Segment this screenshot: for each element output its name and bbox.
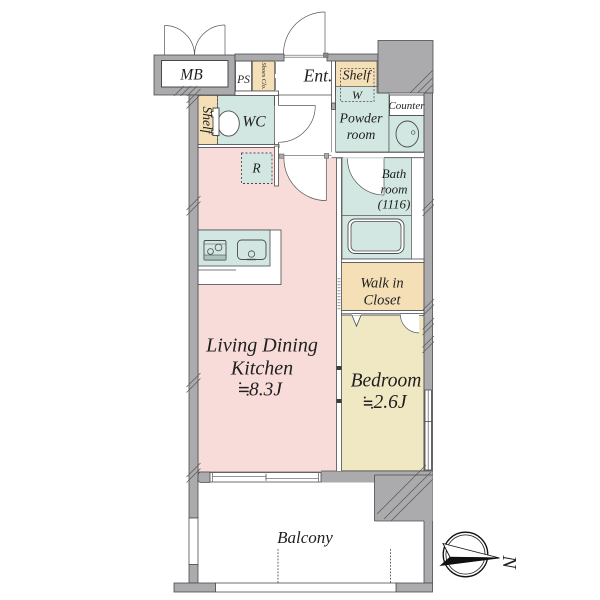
- svg-text:Bedroom: Bedroom: [351, 370, 422, 391]
- svg-text:MB: MB: [179, 67, 203, 84]
- svg-text:Shelf: Shelf: [343, 69, 373, 84]
- svg-text:Shelf: Shelf: [200, 107, 215, 136]
- svg-text:room: room: [347, 127, 376, 142]
- svg-text:Counter: Counter: [388, 100, 425, 112]
- svg-text:8.3J: 8.3J: [249, 379, 283, 400]
- svg-text:Living Dining: Living Dining: [205, 335, 318, 357]
- svg-text:N: N: [498, 554, 520, 570]
- svg-text:R: R: [251, 161, 261, 176]
- svg-text:Ent.: Ent.: [303, 66, 333, 86]
- svg-text:Powder: Powder: [339, 111, 384, 126]
- svg-text:Walk in: Walk in: [360, 276, 403, 292]
- svg-text:W: W: [352, 88, 363, 102]
- svg-text:Kitchen: Kitchen: [230, 358, 293, 380]
- svg-text:room: room: [381, 182, 408, 197]
- svg-text:Bath: Bath: [382, 166, 407, 181]
- svg-text:WC: WC: [242, 114, 266, 131]
- svg-text:2.6J: 2.6J: [374, 392, 408, 413]
- svg-text:(1116): (1116): [378, 197, 411, 212]
- svg-text:PS: PS: [236, 74, 250, 86]
- svg-text:Balcony: Balcony: [277, 528, 333, 547]
- svg-text:Shoes Clo.: Shoes Clo.: [260, 63, 267, 90]
- svg-text:Closet: Closet: [363, 293, 401, 309]
